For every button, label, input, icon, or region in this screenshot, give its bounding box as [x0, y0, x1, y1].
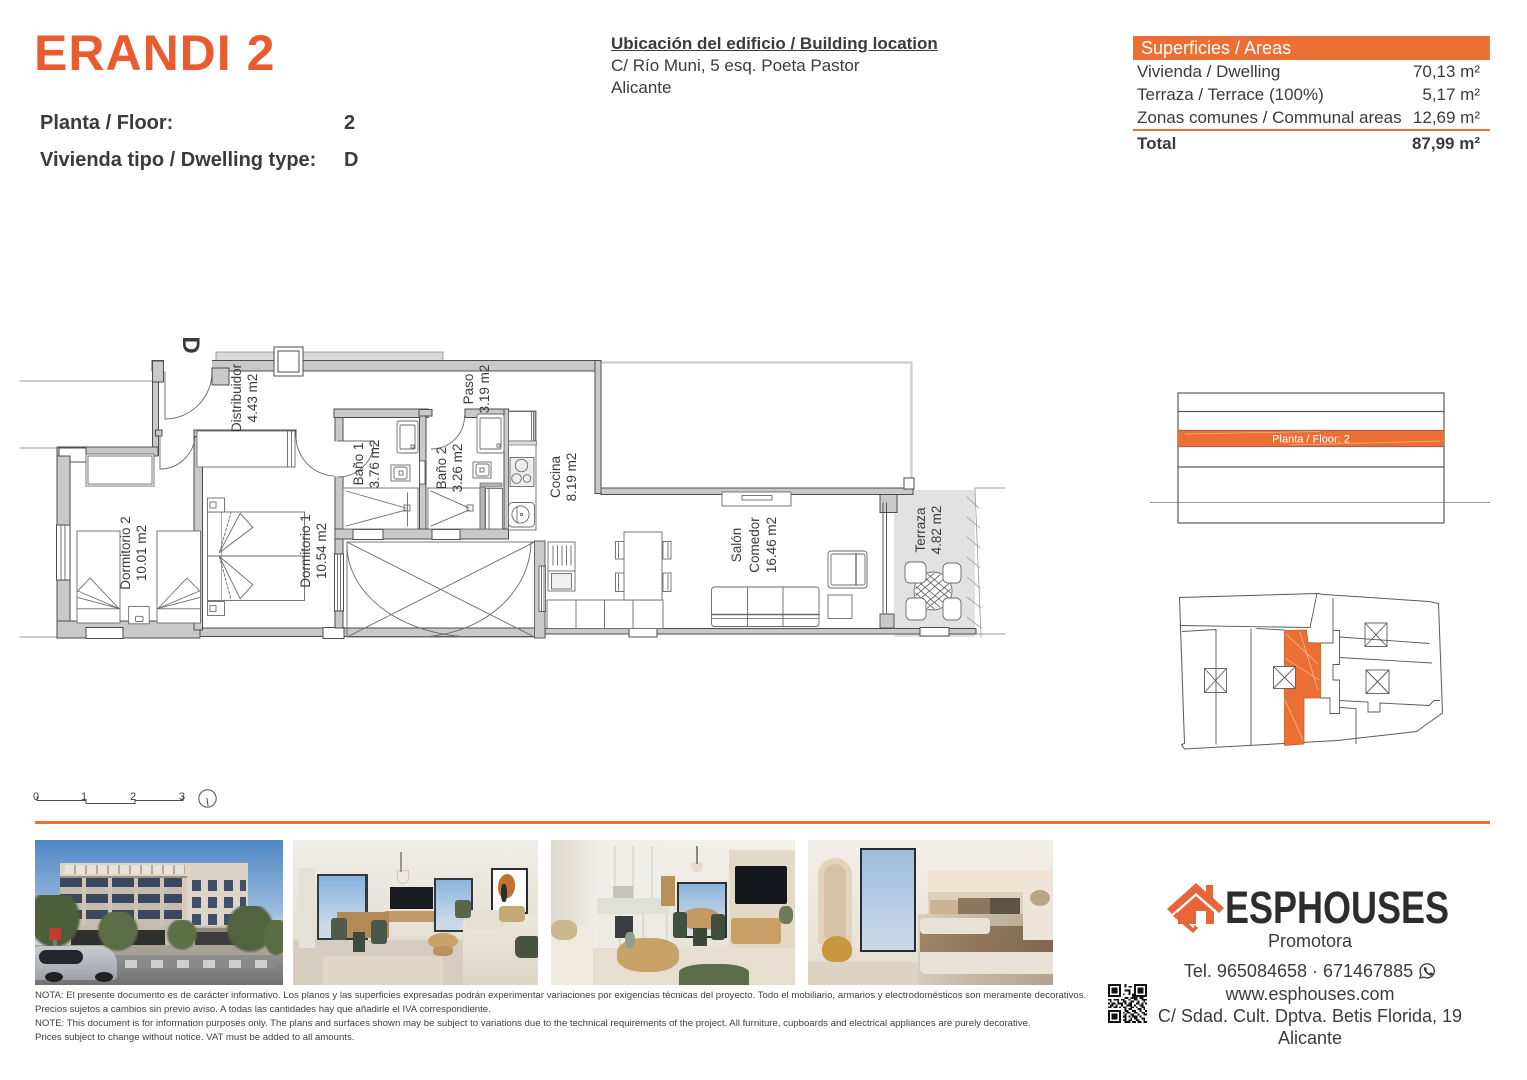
- svg-text:0: 0: [33, 791, 39, 803]
- svg-text:3: 3: [179, 791, 185, 803]
- svg-text:Planta / Floor: 2: Planta / Floor: 2: [1272, 434, 1350, 446]
- svg-text:2: 2: [130, 791, 136, 803]
- svg-text:Cocina8.19 m2: Cocina8.19 m2: [548, 453, 579, 502]
- svg-text:Baño 13.76 m2: Baño 13.76 m2: [351, 440, 382, 489]
- svg-text:Dormitorio 110.54 m2: Dormitorio 110.54 m2: [298, 514, 329, 588]
- svg-text:Baño 23.26 m2: Baño 23.26 m2: [434, 444, 465, 493]
- svg-text:SalónComedor16.46 m2: SalónComedor16.46 m2: [729, 517, 779, 573]
- svg-text:1: 1: [81, 791, 87, 803]
- svg-text:Distribuidor4.43 m2: Distribuidor4.43 m2: [229, 363, 260, 432]
- svg-text:D: D: [177, 336, 204, 353]
- svg-text:Paso3.19 m2: Paso3.19 m2: [461, 365, 492, 414]
- svg-text:Dormitorio 210.01 m2: Dormitorio 210.01 m2: [118, 516, 149, 590]
- svg-text:ESPHOUSES: ESPHOUSES: [1225, 882, 1449, 933]
- svg-text:Terraza4.82 m2: Terraza4.82 m2: [913, 506, 944, 555]
